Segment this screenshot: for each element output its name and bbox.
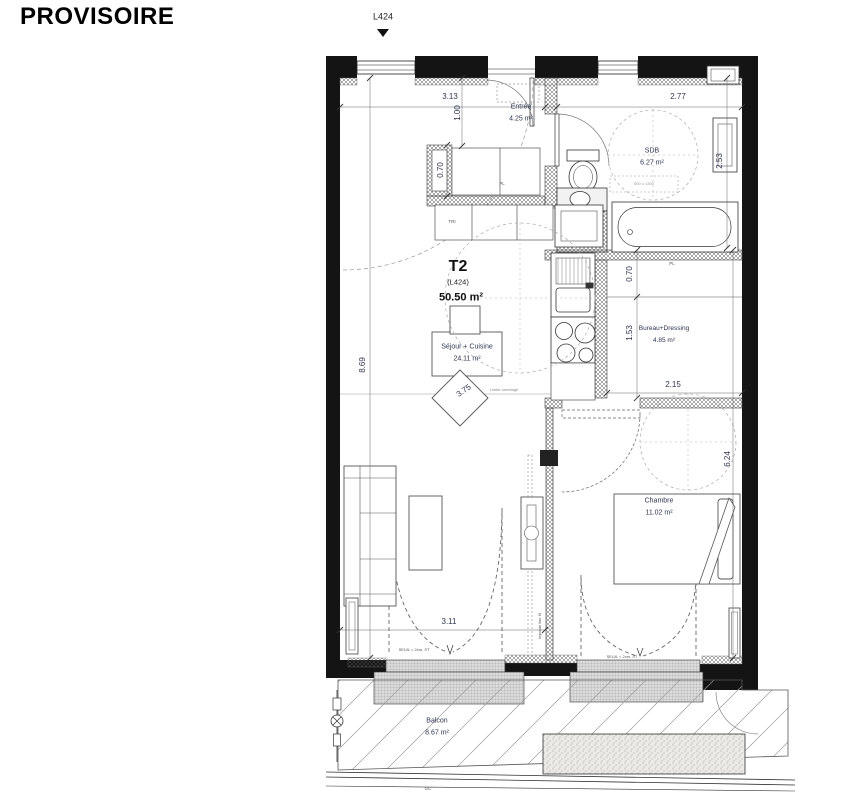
floorplan-drawing [0,0,851,800]
room-area-balcon: 8.67 m² [425,730,449,737]
dim-sejour-height: 8.69 [359,357,367,373]
burner [575,323,595,343]
dim-sdb-width: 2.77 [670,93,686,101]
planter [543,734,745,774]
room-area-bureau: 4.85 m² [653,338,675,345]
balcony [326,680,795,791]
drainboard [556,258,590,284]
kitchen-fixtures [551,205,603,400]
room-label-bureau: Bureau+Dressing [639,326,689,333]
dim-entree-depth: 1.00 [454,105,462,121]
annotation-gc: GC [425,787,432,792]
title-area: 50.50 m² [439,293,483,304]
lot-marker-arrow-icon [377,29,389,37]
room-label-chambre: Chambre [645,498,674,505]
dim-bureau-strip: 0.70 [626,266,634,282]
lot-marker-label: L424 [373,13,393,22]
dim-closet-depth: 0.70 [437,162,445,178]
coffee-table [409,496,442,570]
window-sdb [598,61,638,74]
room-area-sejour: 24.11 m² [453,356,480,363]
annotation-seuil-sejour: SEUIL < 2cm, ST [399,648,430,652]
partition-handle [540,450,558,466]
dim-bureau-height: 1.53 [626,325,634,341]
room-label-entree: Entrée [511,104,532,111]
dim-sejour-door: 3.11 [442,618,457,626]
dim-entree-width: 3.13 [442,93,458,101]
room-area-chambre: 11.02 m² [645,510,672,517]
annotation-imposte: Imposte fixe M [538,613,542,639]
annotation-tri: TRI [448,220,455,225]
annotation-seuil-chambre: SEUIL < 2cm, ST [607,655,638,659]
closets [435,148,553,240]
title-lot: (L424) [447,278,469,286]
kitchen-cabinet [551,363,595,400]
annotation-tub-size: 600 x 1300 [634,182,654,186]
title-type: T2 [449,259,468,275]
room-area-entree: 4.25 m² [509,116,533,123]
provisoire-stamp: PROVISOIRE [20,3,174,31]
room-label-sdb: SDB [645,148,659,155]
dim-sdb-depth: 2.53 [716,153,724,169]
sejour-furniture [344,306,543,654]
kitchen-sink [556,288,590,312]
chambre-furniture [614,494,740,658]
annotation-limite-carrelage: Limite carrelage [490,388,518,392]
room-area-sdb: 6.27 m² [640,160,664,167]
room-label-sejour: Séjour + Cuisine [441,344,493,351]
chambre-door-leaf [562,410,640,418]
dim-chambre-height: 6.24 [724,451,732,467]
chambre-door-swing [562,414,640,492]
sdb-door-leaf [555,114,559,166]
burner [579,348,593,362]
dining-table [432,332,502,376]
burner [557,344,575,362]
burner [556,323,573,340]
entree-closet [452,148,540,195]
annotation-pl-bureau: PL [669,262,675,267]
floorplan-canvas: PROVISOIRE L424 3.13 1.00 2.77 2.53 0.70… [0,0,851,800]
toilet-tank [567,150,599,161]
faucet [586,283,593,288]
window-sejour [357,61,415,74]
side-table [450,306,480,334]
annotation-pl-entree: PL [499,182,505,187]
dim-bureau-width: 2.15 [665,381,681,389]
washbasin [570,192,590,207]
room-label-balcon: Balcon [426,718,447,725]
